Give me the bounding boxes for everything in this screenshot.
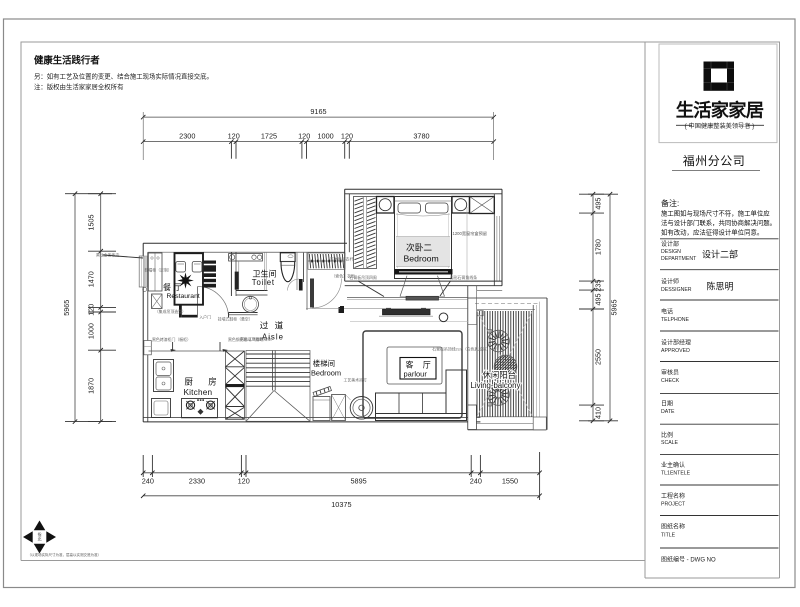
svg-text:审核员: 审核员 bbox=[661, 369, 679, 377]
svg-text:TELPHONE: TELPHONE bbox=[661, 317, 690, 323]
svg-text:指: 指 bbox=[38, 532, 42, 537]
svg-text:1870: 1870 bbox=[87, 378, 96, 394]
svg-text:客: 客 bbox=[406, 359, 414, 369]
svg-text:房: 房 bbox=[208, 376, 216, 386]
svg-text:休闲阳台: 休闲阳台 bbox=[483, 370, 517, 380]
svg-text:1470: 1470 bbox=[87, 271, 96, 287]
svg-text:1000: 1000 bbox=[317, 132, 333, 141]
svg-text:5965: 5965 bbox=[610, 300, 619, 316]
svg-text:实木质挂衣杆: 实木质挂衣杆 bbox=[330, 257, 353, 262]
svg-text:生活家家居: 生活家家居 bbox=[676, 100, 764, 121]
svg-text:240: 240 bbox=[142, 477, 154, 486]
svg-text:1505: 1505 bbox=[87, 214, 96, 230]
svg-text:DATE: DATE bbox=[661, 409, 675, 415]
svg-text:{ 中国健康整装美领导者 }: { 中国健康整装美领导者 } bbox=[685, 122, 754, 130]
svg-text:SCALE: SCALE bbox=[661, 440, 679, 446]
svg-text:495: 495 bbox=[594, 198, 603, 210]
svg-text:过: 过 bbox=[260, 320, 269, 331]
svg-text:2330: 2330 bbox=[189, 477, 205, 486]
svg-text:图纸名称: 图纸名称 bbox=[661, 523, 685, 531]
svg-text:2550: 2550 bbox=[594, 349, 603, 365]
svg-text:健康生活践行者: 健康生活践行者 bbox=[34, 55, 100, 66]
svg-text:厅: 厅 bbox=[423, 360, 431, 369]
svg-text:DEPARTMENT: DEPARTMENT bbox=[661, 256, 697, 262]
svg-text:120: 120 bbox=[238, 477, 250, 486]
svg-text:餐 厅: 餐 厅 bbox=[163, 283, 181, 292]
svg-text:1780: 1780 bbox=[594, 239, 603, 255]
svg-text:工艺美术吊灯: 工艺美术吊灯 bbox=[344, 378, 367, 383]
svg-text:240: 240 bbox=[470, 477, 482, 486]
svg-text:DESSIGNER: DESSIGNER bbox=[661, 287, 692, 293]
svg-text:次卧二: 次卧二 bbox=[406, 241, 432, 252]
svg-text:Bedroom: Bedroom bbox=[311, 369, 341, 378]
svg-text:设计二部: 设计二部 bbox=[702, 249, 738, 260]
svg-text:电话: 电话 bbox=[661, 308, 673, 316]
svg-text:另：如有工艺及位置的变更、结合施工现场实际情况直接交底。: 另：如有工艺及位置的变更、结合施工现场实际情况直接交底。 bbox=[34, 72, 213, 81]
svg-text:楼梯间: 楼梯间 bbox=[313, 359, 335, 368]
svg-text:（集成吊顶造型）: （集成吊顶造型） bbox=[155, 309, 186, 314]
svg-text:北: 北 bbox=[38, 537, 42, 542]
svg-text:Bedroom: Bedroom bbox=[404, 254, 439, 264]
svg-text:工程名称: 工程名称 bbox=[661, 492, 685, 500]
svg-text:黑色钢化玻璃（隔断）: 黑色钢化玻璃（隔断） bbox=[228, 337, 267, 342]
svg-text:1725: 1725 bbox=[261, 132, 277, 141]
svg-text:Restaurant: Restaurant bbox=[167, 293, 200, 300]
svg-text:如有改动，应法征得设计单位同意。: 如有改动，应法征得设计单位同意。 bbox=[661, 228, 763, 237]
svg-text:图纸编号 - DWG NO: 图纸编号 - DWG NO bbox=[661, 556, 716, 564]
svg-text:10375: 10375 bbox=[331, 500, 351, 509]
svg-text:5965: 5965 bbox=[62, 300, 71, 316]
svg-text:410: 410 bbox=[594, 407, 603, 419]
svg-text:120: 120 bbox=[341, 132, 353, 141]
svg-text:（以现场实际尺寸为准，层高以实测交底为准）: （以现场实际尺寸为准，层高以实测交底为准） bbox=[28, 552, 102, 557]
svg-text:120: 120 bbox=[87, 304, 96, 316]
svg-text:厨: 厨 bbox=[185, 376, 193, 386]
svg-text:CHECK: CHECK bbox=[661, 378, 680, 384]
svg-text:parlour: parlour bbox=[404, 370, 428, 379]
svg-text:1200宽窗帘盒预留: 1200宽窗帘盒预留 bbox=[453, 230, 487, 237]
svg-text:石膏板吊顶线2cm（白色乳胶漆）: 石膏板吊顶线2cm（白色乳胶漆） bbox=[432, 346, 490, 351]
svg-text:鞋帽柜（定制）: 鞋帽柜（定制） bbox=[145, 268, 172, 273]
svg-text:日期: 日期 bbox=[661, 400, 673, 408]
svg-text:APPROVED: APPROVED bbox=[661, 348, 690, 354]
svg-text:设计部经理: 设计部经理 bbox=[661, 339, 691, 347]
svg-text:Kitchen: Kitchen bbox=[184, 388, 213, 397]
svg-text:9165: 9165 bbox=[310, 107, 326, 116]
svg-text:入户门: 入户门 bbox=[199, 314, 211, 319]
svg-text:1000: 1000 bbox=[87, 323, 96, 339]
svg-text:495: 495 bbox=[594, 294, 603, 306]
svg-text:卫生间: 卫生间 bbox=[253, 268, 277, 278]
svg-text:1550: 1550 bbox=[502, 477, 518, 486]
svg-text:比例: 比例 bbox=[661, 431, 673, 439]
svg-text:黑色烤漆柜门（橱柜）: 黑色烤漆柜门（橱柜） bbox=[152, 337, 191, 342]
svg-text:备注:: 备注: bbox=[661, 198, 679, 208]
svg-text:DESIGN: DESIGN bbox=[661, 249, 681, 255]
svg-text:120: 120 bbox=[298, 132, 310, 141]
svg-text:注：版权由生活家家居全权所有: 注：版权由生活家家居全权所有 bbox=[34, 82, 123, 91]
svg-text:Toilet: Toilet bbox=[252, 278, 275, 287]
svg-text:业主确认: 业主确认 bbox=[661, 461, 685, 469]
svg-text:设计师: 设计师 bbox=[661, 278, 679, 286]
svg-text:（索色）衣柜: （索色）衣柜 bbox=[332, 274, 355, 279]
svg-text:设计部: 设计部 bbox=[661, 240, 679, 248]
svg-text:PROJECT: PROJECT bbox=[661, 502, 686, 508]
svg-text:挂墙式鞋柜（悬空）: 挂墙式鞋柜（悬空） bbox=[218, 316, 253, 321]
svg-text:TITLE: TITLE bbox=[661, 533, 676, 539]
svg-text:法与设计部门联系，共同协商解决问题。: 法与设计部门联系，共同协商解决问题。 bbox=[661, 218, 776, 227]
svg-text:235: 235 bbox=[594, 280, 603, 292]
svg-text:TL1ENTELE: TL1ENTELE bbox=[661, 471, 691, 477]
svg-text:陈思明: 陈思明 bbox=[706, 281, 733, 292]
svg-text:5895: 5895 bbox=[350, 477, 366, 486]
svg-text:弧形石膏角线条: 弧形石膏角线条 bbox=[450, 275, 477, 280]
svg-text:福州分公司: 福州分公司 bbox=[683, 153, 746, 168]
svg-text:3780: 3780 bbox=[413, 132, 429, 141]
svg-text:120: 120 bbox=[228, 132, 240, 141]
svg-text:Living-balcony: Living-balcony bbox=[471, 381, 521, 390]
svg-text:施工图如与现场尺寸不符，施工单位应: 施工图如与现场尺寸不符，施工单位应 bbox=[661, 209, 770, 218]
svg-text:2300: 2300 bbox=[179, 132, 195, 141]
svg-text:道: 道 bbox=[275, 320, 284, 331]
